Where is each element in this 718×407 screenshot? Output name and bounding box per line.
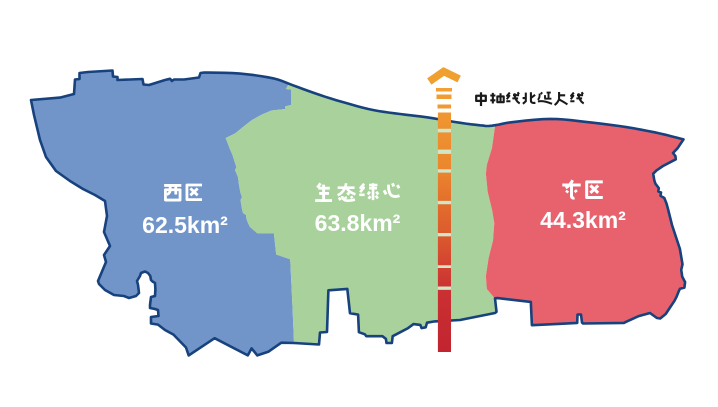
svg-text:44.3km²: 44.3km² (540, 207, 626, 233)
svg-text:62.5km²: 62.5km² (142, 212, 228, 238)
svg-text:63.8km²: 63.8km² (315, 210, 401, 236)
